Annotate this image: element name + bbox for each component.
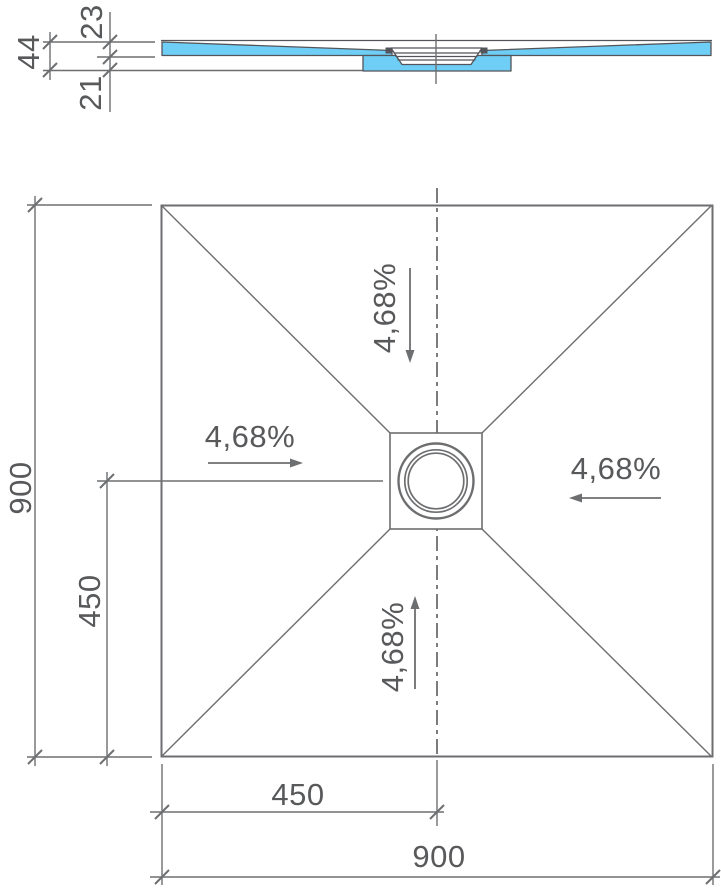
section-dim-21: 21 [73,75,108,110]
section-view: 23 44 21 [11,4,712,112]
slope-label-bottom: 4,68% [375,602,410,692]
dim-450-bottom: 450 [271,777,324,812]
section-profile [161,34,712,84]
drain-clamp-right [481,48,488,54]
dim-450-left: 450 [72,574,107,627]
technical-drawing: 23 44 21 [0,0,721,890]
slope-label-left: 4,68% [205,419,295,454]
plan-view: 4,68% 4,68% 4,68% 4,68% [3,188,720,885]
dim-900-bottom: 900 [412,839,465,874]
drain-clamp-left [386,48,393,54]
tray-left-wedge [162,42,392,56]
slope-label-top: 4,68% [367,263,402,353]
drain-square [390,433,482,529]
section-dim-44: 44 [11,34,46,69]
drain-plan [390,433,482,529]
dim-900-left: 900 [3,461,38,514]
tray-right-wedge [482,42,711,56]
section-dim-23: 23 [74,4,109,39]
slope-label-right: 4,68% [571,451,661,486]
